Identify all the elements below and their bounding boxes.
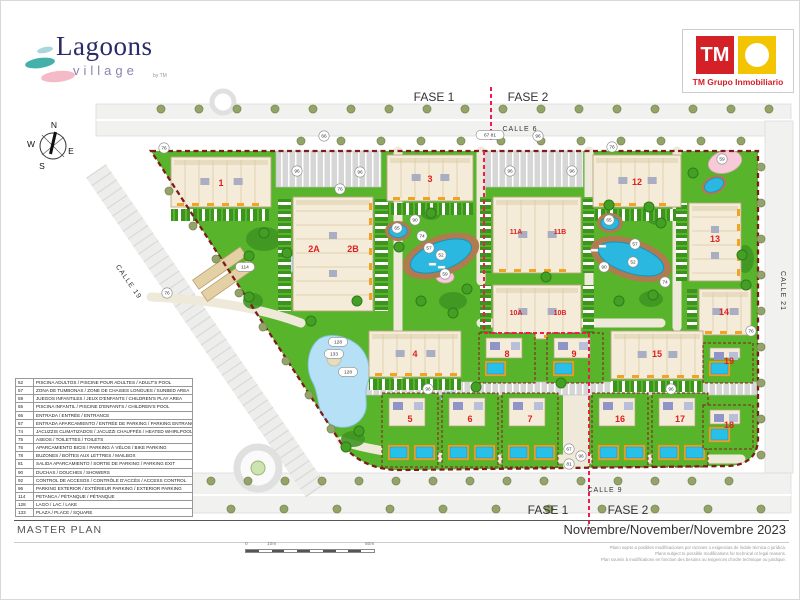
legend-desc: LAGO / LAC / LAKE — [34, 501, 193, 509]
legend-num: 52 — [16, 379, 34, 387]
svg-text:96: 96 — [507, 169, 513, 175]
footer-rule-top — [14, 520, 789, 521]
apartment-building — [493, 197, 581, 273]
svg-text:14: 14 — [719, 307, 729, 317]
legend-desc: ASEOS / TOILETTES / TOILETS — [34, 435, 193, 443]
logo-title: Lagoons — [56, 31, 152, 62]
svg-text:4: 4 — [412, 349, 417, 359]
legend-row: 96PARKING EXTERIOR / EXTÉRIEUR PARKING /… — [16, 484, 193, 492]
roundabout-top — [212, 91, 234, 113]
scale-ten: 10m — [267, 542, 276, 547]
svg-text:76: 76 — [609, 145, 615, 151]
svg-text:133: 133 — [330, 352, 338, 358]
legend-num: 96 — [16, 484, 34, 492]
legend-row: 78BUZONES / BOÎTES AUX LETTRES / MAILBOX — [16, 452, 193, 460]
svg-text:65: 65 — [394, 226, 400, 232]
legend-row: 128LAGO / LAC / LAKE — [16, 501, 193, 509]
legend-desc: ENTRADA APARCAMIENTO / ENTRÉE DE PARKING… — [34, 419, 193, 427]
svg-text:9: 9 — [571, 349, 576, 359]
legend-row: 67ENTRADA APARCAMIENTO / ENTRÉE DE PARKI… — [16, 419, 193, 427]
tm-monogram: TM — [696, 36, 734, 74]
compass-e: E — [68, 146, 74, 156]
svg-text:90: 90 — [412, 218, 418, 224]
disclaimer: Plano sujeto a posibles modificaciones p… — [601, 545, 786, 562]
tm-yellow-square — [738, 36, 776, 74]
legend-desc: PISCINA INFANTIL / PISCINE D'ENFANTS / C… — [34, 403, 193, 411]
villa-plot — [652, 393, 708, 467]
label-fase2-bottom: FASE 2 — [608, 503, 649, 517]
legend-table: 52PISCINA ADULTOS / PISCINE POUR ADULTES… — [15, 378, 193, 517]
scale-bar: 0 10m 50m — [245, 542, 385, 558]
legend-row: 74JACUZZIS CLIMATIZADOS / JACUZZI CHAUFF… — [16, 427, 193, 435]
legend-desc: PARKING EXTERIOR / EXTÉRIEUR PARKING / E… — [34, 484, 193, 492]
legend-table-body: 52PISCINA ADULTOS / PISCINE POUR ADULTES… — [16, 379, 193, 517]
svg-text:10A: 10A — [510, 310, 523, 317]
svg-text:8: 8 — [504, 349, 509, 359]
logo-byline: by TM — [153, 73, 167, 79]
svg-text:76: 76 — [161, 146, 167, 152]
villa-plot — [502, 393, 558, 467]
legend-row: 66ENTRADA / ENTRÉE / ENTRANCE — [16, 411, 193, 419]
svg-text:128: 128 — [344, 370, 352, 376]
legend-desc: PISCINA ADULTOS / PISCINE POUR ADULTES /… — [34, 379, 193, 387]
svg-text:76: 76 — [164, 291, 170, 297]
svg-text:19: 19 — [724, 356, 734, 366]
legend-num: 57 — [16, 387, 34, 395]
tm-logo: TM TM Grupo Inmobiliario — [682, 29, 794, 93]
svg-text:96: 96 — [578, 454, 584, 460]
svg-text:96: 96 — [294, 169, 300, 175]
svg-text:81: 81 — [566, 462, 572, 468]
svg-text:11B: 11B — [554, 229, 566, 236]
footer-rule-bottom — [14, 542, 789, 543]
legend-desc: SALIDA APARCAMIENTO / SORTIE DE PARKING … — [34, 460, 193, 468]
legend-row: 65PISCINA INFANTIL / PISCINE D'ENFANTS /… — [16, 403, 193, 411]
legend-desc: CONTROL DE ACCESOS / CONTRÔLE D'ACCÈS / … — [34, 476, 193, 484]
legend-row: 57ZONA DE TUMBONAS / ZONE DE CHAISES LON… — [16, 387, 193, 395]
tm-sun-icon — [745, 43, 769, 67]
legend-num: 66 — [16, 411, 34, 419]
apartment-building — [293, 197, 373, 311]
legend-desc: BUZONES / BOÎTES AUX LETTRES / MAILBOX — [34, 452, 193, 460]
label-calle19: CALLE 19 — [114, 264, 143, 301]
svg-text:18: 18 — [724, 420, 734, 430]
svg-text:5: 5 — [407, 414, 412, 424]
svg-text:96: 96 — [535, 134, 541, 140]
compass-w: W — [27, 139, 35, 149]
tm-company-name: TM Grupo Inmobiliario — [683, 77, 793, 87]
legend-num: 78 — [16, 452, 34, 460]
legend-num: 67 — [16, 419, 34, 427]
svg-text:12: 12 — [632, 177, 642, 187]
svg-text:17: 17 — [675, 414, 685, 424]
svg-text:90: 90 — [601, 265, 607, 271]
legend-desc: JACUZZIS CLIMATIZADOS / JACUZZI CHAUFFÉS… — [34, 427, 193, 435]
legend-row: 90DUCHAS / DOUCHES / SHOWERS — [16, 468, 193, 476]
legend-row: 133PLAZA / PLACE / SQUARE — [16, 509, 193, 517]
svg-text:13: 13 — [710, 234, 720, 244]
legend-desc: ZONA DE TUMBONAS / ZONE DE CHAISES LONGU… — [34, 387, 193, 395]
svg-text:59: 59 — [442, 272, 448, 278]
villa-plot — [442, 393, 498, 467]
logo-subtitle: village — [73, 63, 138, 78]
svg-text:10B: 10B — [554, 310, 567, 317]
svg-text:7: 7 — [527, 414, 532, 424]
svg-text:11A: 11A — [510, 229, 522, 236]
legend-desc: PLAZA / PLACE / SQUARE — [34, 509, 193, 517]
svg-text:67 81: 67 81 — [484, 133, 496, 139]
svg-text:6: 6 — [467, 414, 472, 424]
sheet-title: MASTER PLAN — [17, 524, 102, 536]
legend-row: 59JUEGOS INFANTILES / JEUX D'ENFANTS / C… — [16, 395, 193, 403]
legend-row: 81SALIDA APARCAMIENTO / SORTIE DE PARKIN… — [16, 460, 193, 468]
svg-text:76: 76 — [337, 187, 343, 193]
legend-row: 52PISCINA ADULTOS / PISCINE POUR ADULTES… — [16, 379, 193, 387]
label-calle9: CALLE 9 — [587, 487, 622, 494]
disclaimer-fr: Plan soumis à modifications en fonction … — [601, 557, 786, 563]
legend-desc: PETANCA / PÉTANQUE / PÉTANQUE — [34, 492, 193, 500]
legend-num: 59 — [16, 395, 34, 403]
scale-bar-cells — [245, 549, 375, 553]
legend-num: 128 — [16, 501, 34, 509]
svg-text:15: 15 — [652, 349, 662, 359]
svg-text:1: 1 — [218, 178, 223, 188]
legend-num: 81 — [16, 460, 34, 468]
svg-text:52: 52 — [438, 253, 444, 259]
legend-desc: DUCHAS / DOUCHES / SHOWERS — [34, 468, 193, 476]
street-calle21 — [765, 121, 793, 473]
legend-row: 76APARCAMIENTO BICIS / PARKING À VÉLOS /… — [16, 444, 193, 452]
compass: N W E S — [27, 120, 74, 171]
legend-row: 114PETANCA / PÉTANQUE / PÉTANQUE — [16, 492, 193, 500]
svg-text:52: 52 — [630, 260, 636, 266]
svg-text:57: 57 — [426, 246, 432, 252]
legend-num: 92 — [16, 476, 34, 484]
villa-plot — [382, 393, 438, 467]
legend-desc: JUEGOS INFANTILES / JEUX D'ENFANTS / CHI… — [34, 395, 193, 403]
svg-text:66: 66 — [321, 134, 327, 140]
svg-text:2A: 2A — [308, 244, 320, 254]
svg-text:16: 16 — [615, 414, 625, 424]
svg-text:96: 96 — [357, 170, 363, 176]
label-fase2-top: FASE 2 — [508, 90, 549, 104]
svg-text:74: 74 — [419, 234, 425, 240]
svg-text:96: 96 — [569, 169, 575, 175]
legend-row: 92CONTROL DE ACCESOS / CONTRÔLE D'ACCÈS … — [16, 476, 193, 484]
svg-text:128: 128 — [334, 340, 342, 346]
label-calle21: CALLE 21 — [779, 271, 786, 311]
legend-num: 75 — [16, 435, 34, 443]
legend-num: 74 — [16, 427, 34, 435]
svg-text:96: 96 — [425, 387, 431, 393]
legend-num: 76 — [16, 444, 34, 452]
legend-num: 133 — [16, 509, 34, 517]
scale-zero: 0 — [245, 542, 248, 547]
svg-text:96: 96 — [668, 387, 674, 393]
svg-text:114: 114 — [241, 265, 249, 271]
scale-fifty: 50m — [365, 542, 374, 547]
legend-num: 65 — [16, 403, 34, 411]
disclaimer-es: Plano sujeto a posibles modificaciones p… — [601, 545, 786, 551]
master-plan-sheet: 7676767676669667 81969696969696966781656… — [0, 0, 800, 600]
legend-desc: ENTRADA / ENTRÉE / ENTRANCE — [34, 411, 193, 419]
svg-text:57: 57 — [632, 242, 638, 248]
villa-plot — [592, 393, 648, 467]
svg-text:65: 65 — [606, 218, 612, 224]
svg-text:2B: 2B — [347, 244, 359, 254]
svg-text:67: 67 — [566, 447, 572, 453]
svg-text:76: 76 — [748, 329, 754, 335]
legend-row: 75ASEOS / TOILETTES / TOILETS — [16, 435, 193, 443]
label-fase1-top: FASE 1 — [414, 90, 455, 104]
roundabout-bottom-island — [251, 461, 265, 475]
legend-num: 114 — [16, 492, 34, 500]
label-calle6: CALLE 6 — [502, 126, 537, 133]
svg-text:59: 59 — [719, 157, 725, 163]
apartment-building — [493, 285, 581, 339]
legend-num: 90 — [16, 468, 34, 476]
svg-text:74: 74 — [662, 280, 668, 286]
compass-n: N — [51, 120, 57, 130]
compass-s: S — [39, 161, 45, 171]
sheet-date: Noviembre/November/Novembre 2023 — [563, 522, 786, 537]
label-fase1-bottom: FASE 1 — [528, 503, 569, 517]
legend-desc: APARCAMIENTO BICIS / PARKING À VÉLOS / B… — [34, 444, 193, 452]
svg-text:3: 3 — [427, 174, 432, 184]
